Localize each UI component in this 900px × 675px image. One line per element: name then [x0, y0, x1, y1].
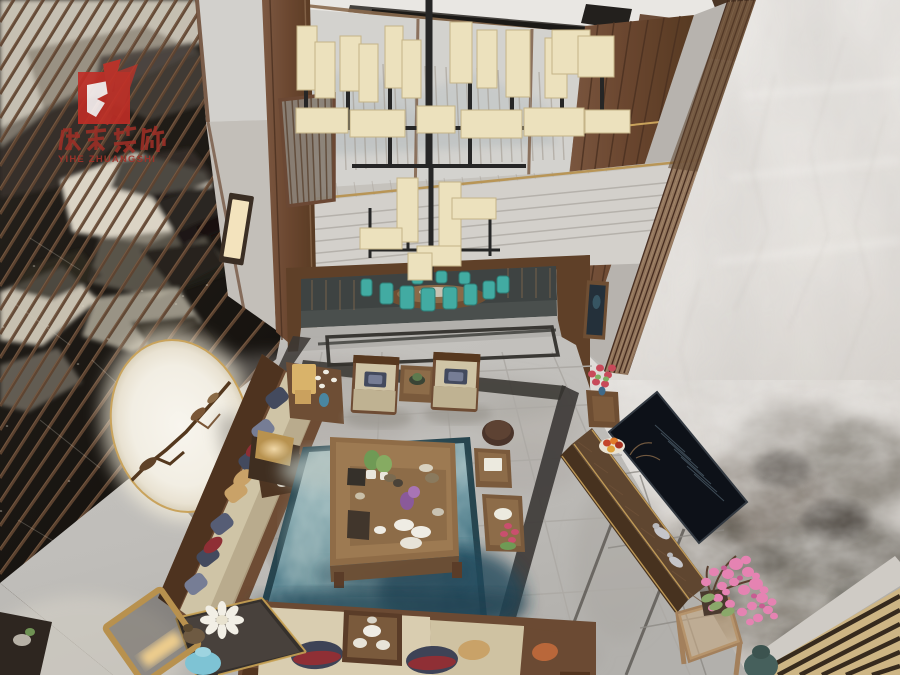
svg-text:YIHE ZHUANGSHI: YIHE ZHUANGSHI: [58, 154, 156, 165]
